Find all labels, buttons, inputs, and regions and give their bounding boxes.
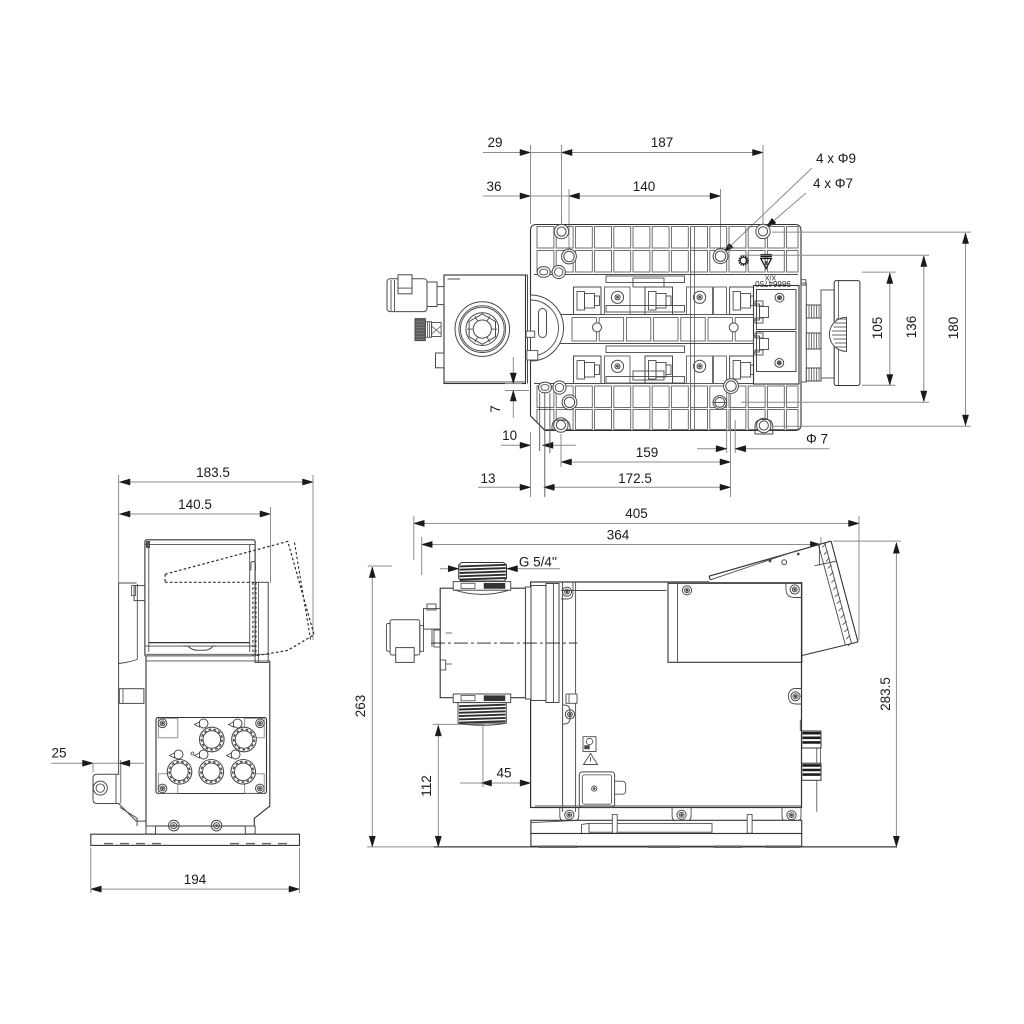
svg-text:4 x Φ7: 4 x Φ7 bbox=[813, 176, 853, 191]
svg-text:140: 140 bbox=[633, 179, 656, 194]
svg-text:364: 364 bbox=[607, 528, 630, 543]
svg-text:98664750: 98664750 bbox=[755, 279, 791, 288]
svg-text:283.5: 283.5 bbox=[878, 677, 893, 711]
svg-text:405: 405 bbox=[625, 506, 648, 521]
svg-text:187: 187 bbox=[651, 135, 674, 150]
svg-text:105: 105 bbox=[870, 317, 885, 340]
svg-text:G 5/4'': G 5/4'' bbox=[519, 555, 557, 570]
svg-text:29: 29 bbox=[487, 135, 502, 150]
svg-text:36: 36 bbox=[486, 179, 501, 194]
svg-text:136: 136 bbox=[904, 316, 919, 339]
svg-text:183.5: 183.5 bbox=[196, 465, 230, 480]
svg-text:194: 194 bbox=[184, 872, 207, 887]
svg-text:4 x Φ9: 4 x Φ9 bbox=[816, 151, 856, 166]
svg-text:112: 112 bbox=[419, 775, 434, 797]
svg-text:7: 7 bbox=[488, 405, 503, 413]
svg-text:159: 159 bbox=[636, 445, 659, 460]
svg-text:13: 13 bbox=[480, 471, 495, 486]
svg-text:263: 263 bbox=[353, 695, 368, 718]
svg-text:Φ 7: Φ 7 bbox=[806, 432, 828, 447]
svg-text:25: 25 bbox=[51, 746, 66, 761]
svg-text:45: 45 bbox=[496, 766, 511, 781]
svg-text:172.5: 172.5 bbox=[618, 471, 652, 486]
svg-text:180: 180 bbox=[946, 317, 961, 340]
svg-text:10: 10 bbox=[502, 428, 517, 443]
svg-text:140.5: 140.5 bbox=[178, 497, 212, 512]
